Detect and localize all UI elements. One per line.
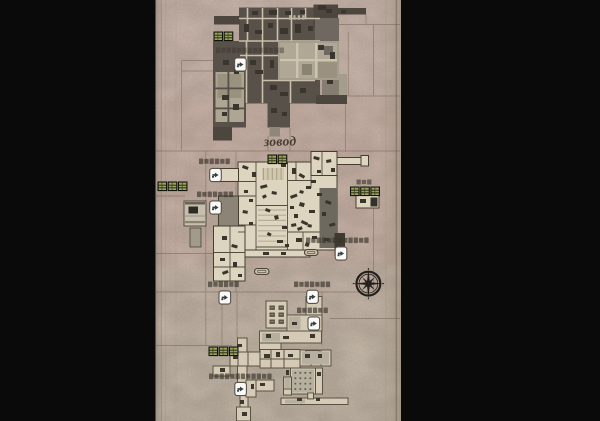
svg-text:зовод: зовод — [263, 133, 297, 149]
